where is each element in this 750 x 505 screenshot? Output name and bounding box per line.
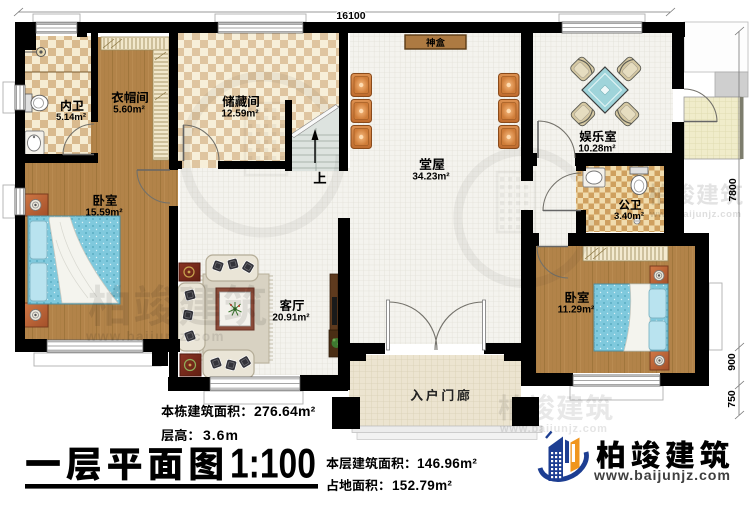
svg-text:900: 900 — [726, 353, 738, 371]
svg-text:5.60m²: 5.60m² — [113, 105, 145, 116]
svg-text:11.29m²: 11.29m² — [558, 305, 595, 316]
svg-text:1:100: 1:100 — [230, 441, 316, 487]
svg-text:34.23m²: 34.23m² — [412, 172, 450, 183]
svg-text:20.91m²: 20.91m² — [272, 313, 310, 324]
svg-text:5.14m²: 5.14m² — [56, 112, 86, 123]
svg-text:10.28m²: 10.28m² — [578, 144, 616, 155]
svg-text:16100: 16100 — [336, 10, 365, 22]
svg-text:15.59m²: 15.59m² — [85, 208, 123, 219]
svg-text:276.64m²: 276.64m² — [254, 403, 316, 419]
svg-text:12.59m²: 12.59m² — [221, 109, 259, 120]
svg-text:www.baijunjz.com: www.baijunjz.com — [649, 209, 742, 220]
svg-text:www.baijunjz.com: www.baijunjz.com — [499, 423, 608, 435]
svg-text:146.96m²: 146.96m² — [417, 456, 477, 471]
svg-text:www.baijunjz.com: www.baijunjz.com — [85, 329, 225, 344]
svg-text:750: 750 — [726, 390, 738, 408]
svg-text:3.40m²: 3.40m² — [614, 211, 644, 222]
svg-text:152.79m²: 152.79m² — [392, 478, 452, 493]
svg-text:www.baijunjz.com: www.baijunjz.com — [593, 468, 731, 484]
